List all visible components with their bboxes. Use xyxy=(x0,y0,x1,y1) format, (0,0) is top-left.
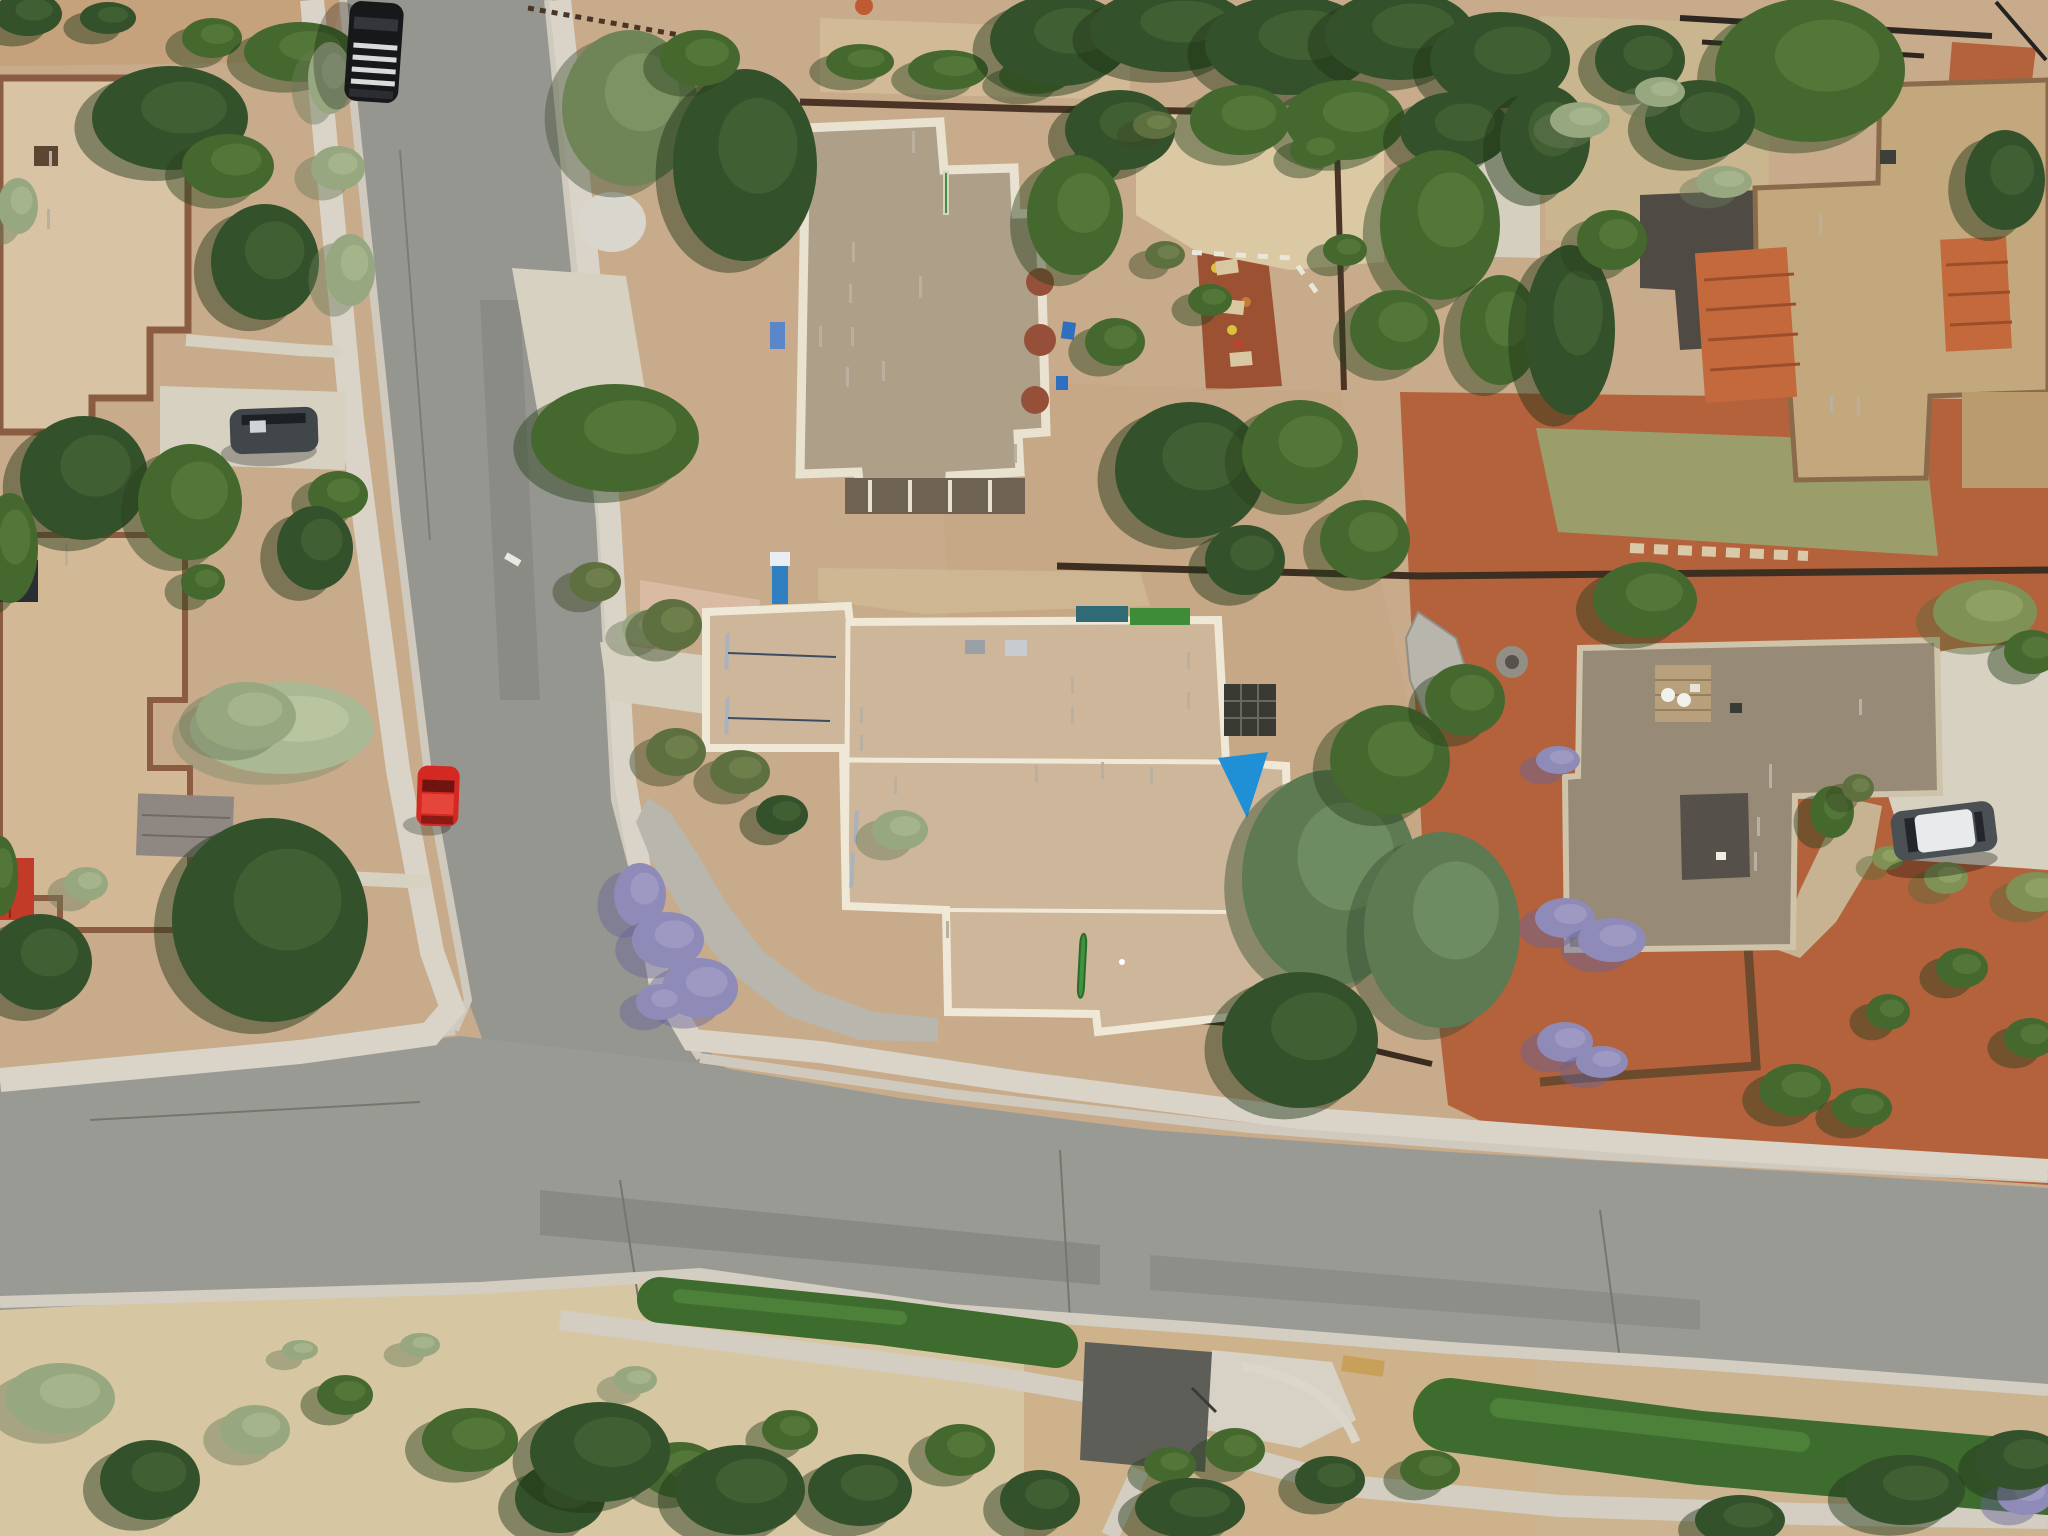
tree-highlight xyxy=(1851,1094,1884,1114)
tree-highlight xyxy=(78,872,102,889)
tree-highlight xyxy=(841,1465,898,1501)
tree-highlight xyxy=(0,510,30,565)
tree-highlight xyxy=(585,568,614,588)
tree-highlight xyxy=(245,221,304,279)
skylight xyxy=(1758,818,1759,835)
upper-story-dark xyxy=(1680,793,1750,880)
tree-highlight xyxy=(234,849,342,951)
tree-highlight xyxy=(301,519,343,561)
tree-highlight xyxy=(1348,512,1398,552)
tree-highlight xyxy=(890,816,921,836)
car-sunroof xyxy=(250,420,266,433)
skylight xyxy=(853,243,854,261)
tree-highlight xyxy=(1723,1503,1773,1528)
tree-highlight xyxy=(1966,590,2023,622)
parapet-line xyxy=(846,622,848,906)
parapet-line xyxy=(948,910,1226,912)
flower-bed-red xyxy=(1024,324,1056,356)
car-gray-suv-driveway xyxy=(219,406,319,467)
vent-dark xyxy=(1730,703,1742,713)
skylight-blue xyxy=(770,322,785,349)
tree-highlight xyxy=(1418,173,1484,248)
tree-highlight xyxy=(1550,750,1574,764)
misc-recycle-bin xyxy=(1056,376,1068,390)
garden-flagstone xyxy=(1229,351,1252,367)
tree-highlight xyxy=(847,49,884,67)
fire-pit-center xyxy=(1505,655,1519,669)
tree-highlight xyxy=(1474,26,1551,74)
tree-highlight xyxy=(1599,925,1636,947)
tree-highlight xyxy=(195,569,219,587)
tree-highlight xyxy=(780,1416,811,1436)
tree-highlight xyxy=(1599,219,1638,249)
skylight xyxy=(947,922,948,937)
tree-highlight xyxy=(1160,1452,1189,1470)
solar-array xyxy=(850,854,854,887)
tree-highlight xyxy=(293,1343,313,1353)
tree-highlight xyxy=(584,400,676,454)
skylight xyxy=(1716,852,1726,860)
ac-unit xyxy=(1005,640,1027,656)
tree-highlight xyxy=(772,801,801,821)
deck-chair xyxy=(1661,688,1675,702)
tree-highlight xyxy=(1271,992,1357,1060)
tree-highlight xyxy=(933,56,977,76)
tree-highlight xyxy=(1378,302,1428,342)
tree-highlight xyxy=(729,757,762,779)
garden-flower-red xyxy=(1233,339,1243,349)
skylight xyxy=(48,210,49,228)
swamp-cooler xyxy=(913,132,914,152)
tree-highlight xyxy=(630,873,659,905)
tree-highlight xyxy=(1224,1435,1257,1457)
tree-highlight xyxy=(1222,96,1277,131)
tree-highlight xyxy=(11,186,33,214)
tree-highlight xyxy=(661,607,694,633)
tree-highlight xyxy=(452,1418,505,1450)
skylight xyxy=(852,328,853,345)
skylight xyxy=(1770,765,1771,787)
skylight xyxy=(1831,396,1832,412)
tree-highlight xyxy=(685,38,729,66)
tree-highlight xyxy=(1555,1028,1586,1048)
skylight xyxy=(1188,693,1189,708)
skylight xyxy=(1858,398,1859,414)
skylight xyxy=(1036,766,1037,781)
tree-highlight xyxy=(1317,1463,1356,1487)
tree-highlight xyxy=(1104,325,1137,349)
tree-highlight xyxy=(1880,999,1904,1017)
tree-highlight xyxy=(718,98,797,194)
skylight xyxy=(1015,445,1016,462)
tree-highlight xyxy=(686,967,728,997)
tree-highlight xyxy=(1306,137,1335,155)
tree-highlight xyxy=(1158,245,1180,259)
tree-highlight xyxy=(1230,536,1274,571)
golf-ball xyxy=(1119,959,1125,965)
tree-highlight xyxy=(627,1370,651,1384)
turf-strip xyxy=(1130,608,1190,625)
tree-highlight xyxy=(651,989,677,1007)
skylight xyxy=(883,362,884,380)
solar-array xyxy=(725,698,728,733)
ac-unit xyxy=(965,640,985,654)
ac-unit-white xyxy=(1820,214,1821,234)
skylight xyxy=(850,285,851,302)
skylight xyxy=(861,708,862,722)
skylight xyxy=(920,277,921,297)
tree-highlight xyxy=(1592,1051,1621,1067)
tree-highlight xyxy=(228,692,283,726)
tree-highlight xyxy=(1553,271,1603,356)
car-windshield xyxy=(422,779,454,792)
parapet-line xyxy=(848,760,1226,762)
skylight xyxy=(820,327,821,346)
skylight xyxy=(1755,853,1756,870)
skylight xyxy=(861,736,862,750)
tree-highlight xyxy=(341,245,369,281)
tree-highlight xyxy=(1202,289,1226,305)
tree-highlight xyxy=(1782,1072,1822,1098)
garden-flower-yellow xyxy=(1227,325,1237,335)
tree-highlight xyxy=(1554,904,1587,924)
aerial-neighborhood-photo xyxy=(0,0,2048,1536)
tree-highlight xyxy=(141,82,227,134)
skylight xyxy=(50,152,51,166)
tree-highlight xyxy=(1680,92,1741,132)
tree-highlight xyxy=(1775,20,1880,92)
skylight xyxy=(1188,653,1189,668)
solar-array xyxy=(725,634,728,668)
car-black-suv xyxy=(310,0,404,114)
car-roof xyxy=(421,793,454,814)
white-gravel-pile xyxy=(578,192,646,252)
tree-highlight xyxy=(1569,107,1602,125)
tree-highlight xyxy=(1852,778,1870,792)
tree-highlight xyxy=(574,1417,651,1467)
deck-chair xyxy=(1677,693,1691,707)
tree-highlight xyxy=(1337,239,1361,255)
tree-highlight xyxy=(1714,171,1745,187)
car-roof-silver xyxy=(1914,808,1976,853)
tree-highlight xyxy=(665,735,698,759)
tile-roof xyxy=(1695,247,1797,403)
car-body xyxy=(344,0,405,104)
skylight xyxy=(1102,763,1103,778)
skylight xyxy=(847,368,848,386)
flower-bed-red xyxy=(1021,386,1049,414)
car-rear-window xyxy=(421,815,453,824)
pergola xyxy=(1224,684,1276,736)
tree-highlight xyxy=(1025,1479,1069,1509)
planter-east xyxy=(1962,392,2048,488)
tree-highlight xyxy=(1990,145,2034,195)
tree-highlight xyxy=(21,928,78,976)
tree-highlight xyxy=(1413,861,1499,959)
misc-recycle-bin xyxy=(1061,321,1076,340)
tree-highlight xyxy=(1952,954,1981,974)
tree-highlight xyxy=(211,144,262,176)
vent-dark xyxy=(1880,150,1896,164)
tree-highlight xyxy=(1450,675,1494,711)
tree-highlight xyxy=(327,478,360,502)
aerial-photo-stage xyxy=(0,0,2048,1536)
skylight xyxy=(895,778,896,793)
misc-blue-sign-cap xyxy=(770,552,790,566)
tree-highlight xyxy=(655,920,695,948)
tree-highlight xyxy=(1651,82,1679,97)
skylight xyxy=(1072,678,1073,693)
tree-highlight xyxy=(60,435,130,497)
tree-highlight xyxy=(328,153,358,175)
skylight xyxy=(1860,700,1861,714)
tree-highlight xyxy=(1626,573,1683,611)
teal-wall xyxy=(1076,606,1128,622)
tree-highlight xyxy=(716,1459,788,1504)
tree-highlight xyxy=(132,1452,187,1492)
tree-highlight xyxy=(335,1381,366,1401)
skylight xyxy=(34,146,58,166)
courtyard-lawn xyxy=(944,172,948,214)
skylight xyxy=(1151,768,1152,783)
tree-highlight xyxy=(201,24,234,44)
tree-highlight xyxy=(171,461,228,519)
tree-highlight xyxy=(1323,92,1389,132)
tree-highlight xyxy=(1623,36,1673,71)
tree-highlight xyxy=(40,1374,101,1409)
skylight xyxy=(1072,708,1073,723)
tree-highlight xyxy=(98,7,129,23)
house-north-roof xyxy=(800,122,1046,508)
tree-highlight xyxy=(1419,1456,1452,1476)
tree-highlight xyxy=(1170,1487,1231,1517)
tree-highlight xyxy=(1883,1466,1949,1501)
tree-highlight xyxy=(2020,1024,2048,1044)
tree-highlight xyxy=(1147,115,1171,129)
tree-highlight xyxy=(1057,173,1110,233)
tree-highlight xyxy=(1279,416,1343,468)
tree-highlight xyxy=(947,1432,986,1458)
tree-highlight xyxy=(413,1337,435,1349)
deck-table xyxy=(1690,684,1700,692)
tree-highlight xyxy=(242,1413,281,1438)
